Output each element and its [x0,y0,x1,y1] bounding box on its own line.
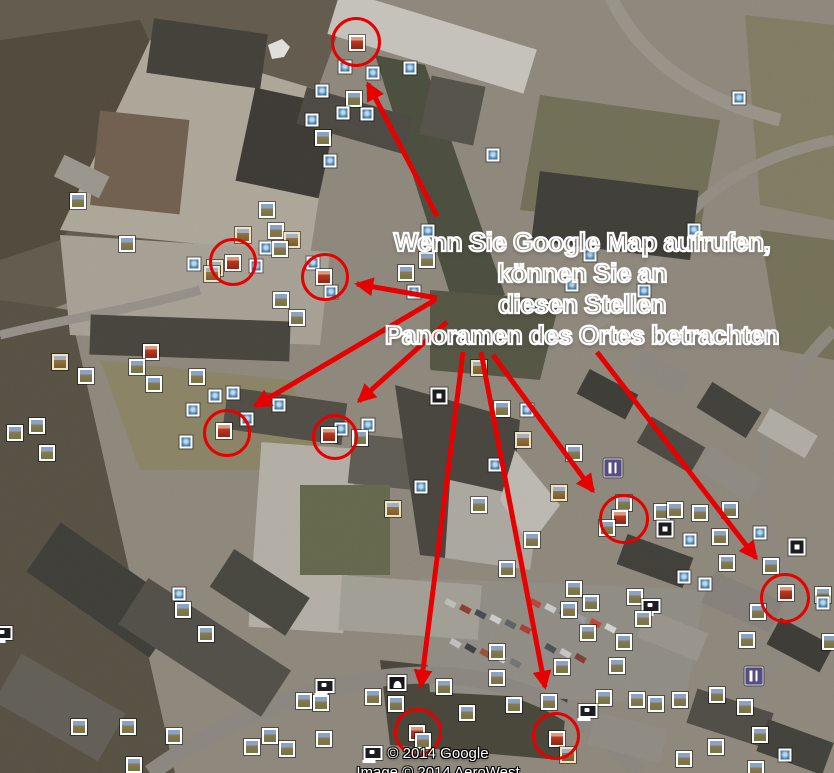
small-photo-placemark-marker[interactable] [699,578,712,591]
photo-placemark-marker[interactable] [471,497,487,513]
photo-placemark-marker[interactable] [524,532,540,548]
photo-placemark-marker[interactable] [763,558,779,574]
photosphere-placemark-marker[interactable] [789,539,806,556]
webcam-placemark-marker[interactable] [316,679,335,693]
photo-placemark-marker[interactable] [748,761,764,773]
photo-placemark-marker[interactable] [506,697,522,713]
restaurant-placemark-marker[interactable] [604,459,623,478]
photo-placemark-marker[interactable] [175,602,191,618]
photo-placemark-marker[interactable] [279,741,295,757]
photo-placemark-marker[interactable] [667,502,683,518]
photo-placemark-marker[interactable] [78,368,94,384]
photo-placemark-marker[interactable] [296,693,312,709]
small-photo-placemark-marker[interactable] [684,534,697,547]
photo-placemark-marker[interactable] [7,425,23,441]
photo-placemark-marker[interactable] [692,505,708,521]
photo-placemark-marker[interactable] [313,695,329,711]
aerial-imagery [0,0,834,773]
photo-placemark-marker[interactable] [198,626,214,642]
photo-placemark-marker[interactable] [822,634,834,650]
small-photo-placemark-marker[interactable] [173,588,186,601]
small-photo-placemark-marker[interactable] [422,225,435,238]
photosphere-placemark-marker[interactable] [431,388,448,405]
annotation-circle [532,712,580,760]
annotation-circle [760,573,810,623]
photo-placemark-marker[interactable] [719,555,735,571]
photo-placemark-vintage-frame-marker[interactable] [515,432,531,448]
annotation-circle [209,238,257,286]
photo-placemark-vintage-frame-marker[interactable] [385,501,401,517]
photo-placemark-marker[interactable] [273,292,289,308]
photo-placemark-marker[interactable] [262,728,278,744]
photo-placemark-marker[interactable] [189,369,205,385]
small-photo-placemark-marker[interactable] [337,107,350,120]
photo-placemark-vintage-frame-marker[interactable] [471,360,487,376]
photo-placemark-marker[interactable] [672,692,688,708]
webcam-placemark-marker[interactable] [0,626,13,640]
photo-placemark-marker[interactable] [259,202,275,218]
photo-placemark-marker[interactable] [596,690,612,706]
photo-placemark-marker[interactable] [566,445,582,461]
small-photo-placemark-marker[interactable] [688,224,701,237]
photo-placemark-marker[interactable] [398,265,414,281]
photo-placemark-marker[interactable] [737,699,753,715]
google-earth-aerial-view: Wenn Sie Google Map aufrufen, können Sie… [0,0,834,773]
small-photo-placemark-marker[interactable] [408,286,421,299]
photo-placemark-marker[interactable] [244,739,260,755]
photo-placemark-marker[interactable] [566,581,582,597]
small-photo-placemark-marker[interactable] [187,404,200,417]
photo-placemark-marker[interactable] [739,632,755,648]
small-photo-placemark-marker[interactable] [521,404,534,417]
small-photo-placemark-marker[interactable] [180,436,193,449]
small-photo-placemark-marker[interactable] [306,114,319,127]
photo-placemark-marker[interactable] [708,739,724,755]
small-photo-placemark-marker[interactable] [316,85,329,98]
small-photo-placemark-marker[interactable] [638,285,651,298]
photo-placemark-marker[interactable] [722,502,738,518]
photo-placemark-marker[interactable] [580,625,596,641]
photo-placemark-marker[interactable] [315,130,331,146]
annotation-circle [301,253,349,301]
small-photo-placemark-marker[interactable] [487,149,500,162]
photo-placemark-marker[interactable] [388,696,404,712]
terrain-shapes [0,0,834,773]
webcam-placemark-marker[interactable] [579,704,598,718]
small-photo-placemark-marker[interactable] [361,108,374,121]
photo-placemark-marker[interactable] [499,561,515,577]
annotation-circle [203,409,251,457]
small-photo-placemark-marker[interactable] [404,62,417,75]
small-photo-placemark-marker[interactable] [273,399,286,412]
photo-placemark-marker[interactable] [489,670,505,686]
photo-placemark-marker[interactable] [126,757,142,773]
photo-placemark-marker[interactable] [272,241,288,257]
small-photo-placemark-marker[interactable] [188,258,201,271]
photo-placemark-vintage-frame-marker[interactable] [551,485,567,501]
highlighted-panorama-placemark-marker[interactable] [143,344,159,360]
photo-placemark-marker[interactable] [70,193,86,209]
photo-placemark-marker[interactable] [120,719,136,735]
monument-placemark-marker[interactable] [388,675,407,691]
photo-placemark-marker[interactable] [346,91,362,107]
photo-placemark-marker[interactable] [316,731,332,747]
small-photo-placemark-marker[interactable] [489,459,502,472]
photo-placemark-marker[interactable] [459,705,475,721]
small-photo-placemark-marker[interactable] [566,279,579,292]
photo-placemark-marker[interactable] [616,634,632,650]
photo-placemark-marker[interactable] [436,679,452,695]
photo-placemark-marker[interactable] [648,696,664,712]
annotation-circle [312,414,358,460]
small-photo-placemark-marker[interactable] [260,242,273,255]
photo-placemark-marker[interactable] [365,689,381,705]
photo-placemark-marker[interactable] [554,659,570,675]
webcam-placemark-marker[interactable] [364,746,383,760]
photo-placemark-marker[interactable] [419,252,435,268]
small-photo-placemark-marker[interactable] [209,390,222,403]
photo-placemark-marker[interactable] [676,751,692,767]
annotation-circle [599,494,649,544]
photo-placemark-marker[interactable] [71,719,87,735]
photo-placemark-vintage-frame-marker[interactable] [52,354,68,370]
annotation-circle [394,708,442,756]
photo-placemark-marker[interactable] [635,611,651,627]
photo-placemark-marker[interactable] [289,310,305,326]
small-photo-placemark-marker[interactable] [733,92,746,105]
annotation-circle [331,17,381,67]
photo-placemark-marker[interactable] [39,445,55,461]
small-photo-placemark-marker[interactable] [584,249,597,262]
photo-placemark-marker[interactable] [712,529,728,545]
photo-placemark-marker[interactable] [494,401,510,417]
photo-placemark-marker[interactable] [129,359,145,375]
small-photo-placemark-marker[interactable] [415,481,428,494]
photo-placemark-marker[interactable] [119,236,135,252]
photo-placemark-marker[interactable] [29,418,45,434]
small-photo-placemark-marker[interactable] [779,749,792,762]
photo-placemark-marker[interactable] [561,602,577,618]
photosphere-placemark-marker[interactable] [657,521,674,538]
photo-placemark-marker[interactable] [709,687,725,703]
photo-placemark-marker[interactable] [609,658,625,674]
small-photo-placemark-marker[interactable] [678,571,691,584]
photo-placemark-marker[interactable] [489,644,505,660]
small-photo-placemark-marker[interactable] [754,527,767,540]
photo-placemark-marker[interactable] [629,692,645,708]
small-photo-placemark-marker[interactable] [367,67,380,80]
small-photo-placemark-marker[interactable] [324,155,337,168]
photo-placemark-marker[interactable] [166,728,182,744]
photo-placemark-marker[interactable] [583,595,599,611]
small-photo-placemark-marker[interactable] [817,597,830,610]
restaurant-placemark-marker[interactable] [745,667,764,686]
photo-placemark-marker[interactable] [752,727,768,743]
photo-placemark-marker[interactable] [541,694,557,710]
photo-placemark-marker[interactable] [146,376,162,392]
small-photo-placemark-marker[interactable] [227,387,240,400]
photo-placemark-marker[interactable] [268,223,284,239]
